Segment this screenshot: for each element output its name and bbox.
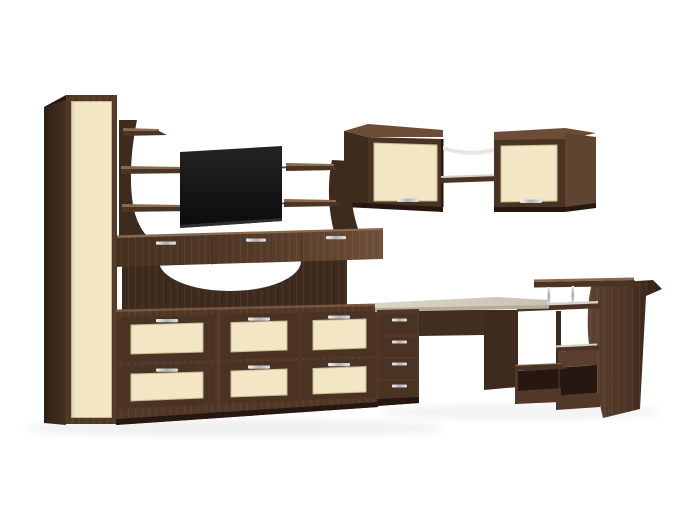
drawer-panel bbox=[131, 372, 203, 401]
wall-cabinet-set bbox=[344, 124, 596, 212]
left-wall-cabinet-handle bbox=[397, 199, 419, 203]
bridge-handle-3 bbox=[326, 236, 346, 239]
furniture-scene bbox=[0, 0, 680, 510]
drawer-panel bbox=[131, 323, 203, 354]
right-shelf-lower-highlight bbox=[284, 199, 336, 202]
drawer-panel bbox=[231, 369, 287, 397]
pedestal-drawer bbox=[379, 314, 417, 335]
wardrobe-door-shade bbox=[72, 102, 75, 418]
tower-lower-interior bbox=[560, 365, 597, 396]
tower-bottom-band bbox=[556, 393, 600, 411]
left-shelf-top bbox=[123, 131, 167, 136]
bridge-handle-2 bbox=[246, 239, 266, 242]
tv-shelf-unit bbox=[119, 120, 361, 240]
left-shelf-lower-highlight bbox=[122, 204, 186, 207]
drawer-handle bbox=[156, 369, 178, 372]
drawer-panel bbox=[313, 319, 366, 350]
drawer-handle bbox=[328, 363, 350, 366]
drawer-chest bbox=[116, 304, 378, 426]
pedestal-drawer bbox=[379, 337, 417, 357]
tv-shelf-left-panel bbox=[119, 120, 151, 240]
chrome-post-left bbox=[548, 287, 551, 305]
tv-screen bbox=[180, 146, 282, 228]
drawer-handle bbox=[156, 319, 178, 322]
nook-upper-glass-shelf bbox=[443, 146, 497, 155]
drawer-panel bbox=[231, 321, 287, 352]
drawer-handle bbox=[328, 316, 350, 319]
tower-small-drawer bbox=[558, 350, 596, 368]
wardrobe-side bbox=[44, 96, 66, 425]
right-wall-cabinet-handle bbox=[520, 200, 542, 204]
pedestal-handle bbox=[392, 319, 407, 322]
pedestal-handle bbox=[392, 341, 407, 344]
right-wall-cabinet-side bbox=[565, 133, 596, 207]
drawer-panel bbox=[313, 367, 366, 395]
drawer-handle bbox=[248, 366, 270, 369]
bridge-handle-1 bbox=[156, 242, 176, 245]
pedestal-handle bbox=[392, 385, 407, 388]
left-shelf-top-highlight bbox=[123, 128, 159, 131]
pedestal-drawer bbox=[379, 359, 417, 379]
wardrobe bbox=[44, 95, 117, 425]
furniture-product-render bbox=[0, 0, 680, 510]
left-wall-cabinet-door bbox=[374, 143, 437, 201]
drawer-handle bbox=[248, 318, 270, 321]
left-shelf-upper-highlight bbox=[121, 166, 186, 169]
desk-apron bbox=[419, 310, 484, 336]
pedestal-handle bbox=[392, 363, 407, 366]
right-shelf-upper-highlight bbox=[286, 163, 334, 166]
pedestal-drawer bbox=[379, 381, 417, 399]
right-wall-cabinet-door bbox=[501, 145, 557, 202]
desk-corner-panel bbox=[484, 310, 518, 390]
wardrobe-door bbox=[72, 102, 112, 418]
chrome-post-right bbox=[572, 286, 575, 303]
